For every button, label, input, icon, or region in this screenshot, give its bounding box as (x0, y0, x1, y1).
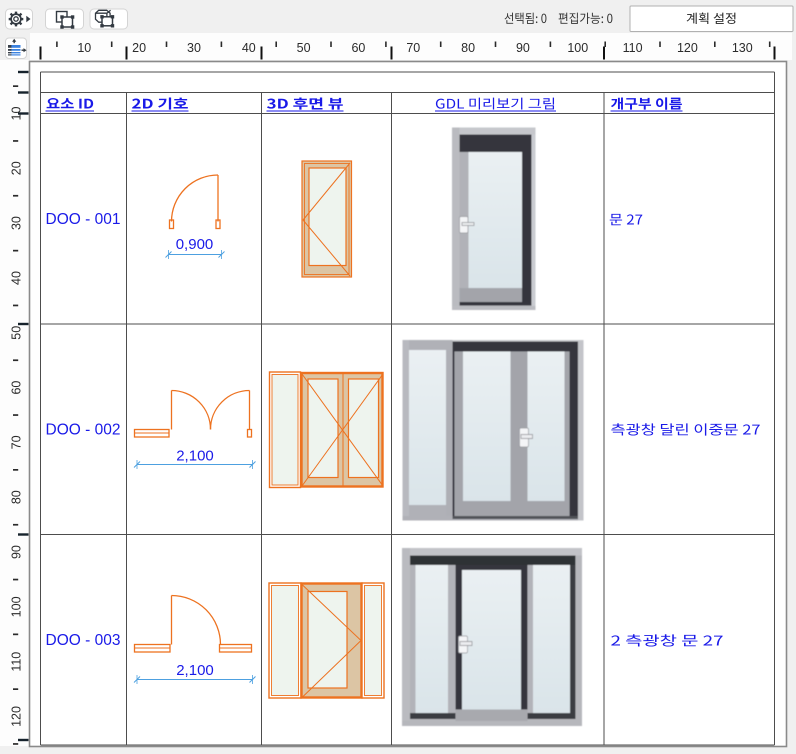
svg-text:20: 20 (9, 161, 23, 175)
svg-text:30: 30 (9, 216, 23, 230)
svg-text:70: 70 (9, 435, 23, 449)
svg-text:20: 20 (132, 41, 146, 55)
svg-text:10: 10 (77, 41, 91, 55)
svg-text:110: 110 (623, 41, 643, 55)
svg-text:80: 80 (9, 490, 23, 504)
svg-text:2,100: 2,100 (176, 448, 214, 465)
svg-text:90: 90 (9, 545, 23, 559)
svg-text:0,900: 0,900 (176, 236, 214, 253)
svg-text:DOO - 002: DOO - 002 (46, 422, 121, 439)
svg-text:70: 70 (406, 41, 420, 55)
svg-text:30: 30 (187, 41, 201, 55)
svg-text:100: 100 (567, 41, 588, 55)
svg-text:50: 50 (9, 326, 23, 340)
svg-text:110: 110 (9, 652, 23, 672)
svg-text:DOO - 001: DOO - 001 (46, 211, 121, 228)
svg-text:60: 60 (351, 41, 365, 55)
svg-text:90: 90 (516, 41, 530, 55)
svg-text:DOO - 003: DOO - 003 (46, 632, 121, 649)
svg-text:120: 120 (677, 41, 698, 55)
svg-text:60: 60 (9, 381, 23, 395)
svg-text:2,100: 2,100 (176, 662, 214, 679)
svg-text:40: 40 (9, 271, 23, 285)
svg-text:40: 40 (242, 41, 256, 55)
svg-text:130: 130 (732, 41, 753, 55)
svg-text:100: 100 (9, 596, 23, 617)
svg-text:50: 50 (297, 41, 311, 55)
svg-text:120: 120 (9, 706, 23, 727)
svg-text:80: 80 (461, 41, 475, 55)
